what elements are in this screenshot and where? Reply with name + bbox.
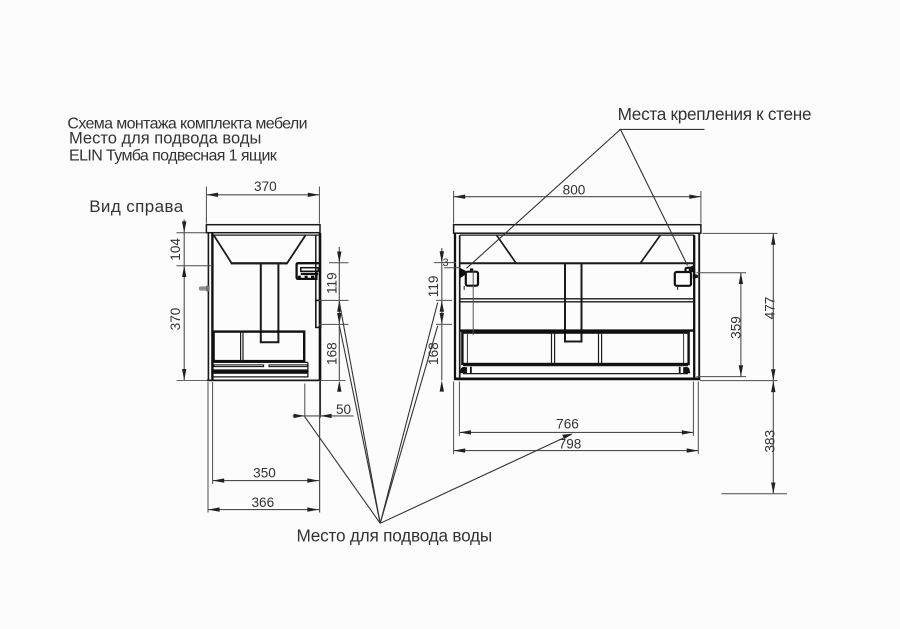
svg-text:104: 104 [168, 238, 183, 261]
svg-text:Места крепления к стене: Места крепления к стене [618, 104, 812, 124]
svg-text:383: 383 [762, 430, 777, 453]
svg-text:Место для подвода воды: Место для подвода воды [297, 526, 492, 546]
svg-text:168: 168 [426, 342, 441, 365]
svg-text:119: 119 [324, 272, 339, 294]
svg-text:ELIN Тумба подвесная 1 ящик: ELIN Тумба подвесная 1 ящик [69, 147, 278, 164]
svg-text:3: 3 [443, 257, 449, 269]
svg-text:Вид справа: Вид справа [89, 197, 184, 216]
svg-text:366: 366 [251, 495, 274, 510]
svg-text:359: 359 [729, 316, 744, 339]
svg-text:477: 477 [762, 297, 777, 320]
svg-text:800: 800 [563, 182, 586, 197]
svg-text:119: 119 [426, 276, 441, 298]
svg-text:50: 50 [336, 402, 352, 417]
svg-text:Место для подвода воды: Место для подвода воды [69, 129, 261, 147]
svg-text:350: 350 [253, 466, 276, 481]
svg-text:766: 766 [556, 417, 579, 432]
svg-text:168: 168 [324, 342, 339, 365]
svg-text:370: 370 [254, 179, 277, 194]
svg-text:370: 370 [168, 307, 183, 330]
